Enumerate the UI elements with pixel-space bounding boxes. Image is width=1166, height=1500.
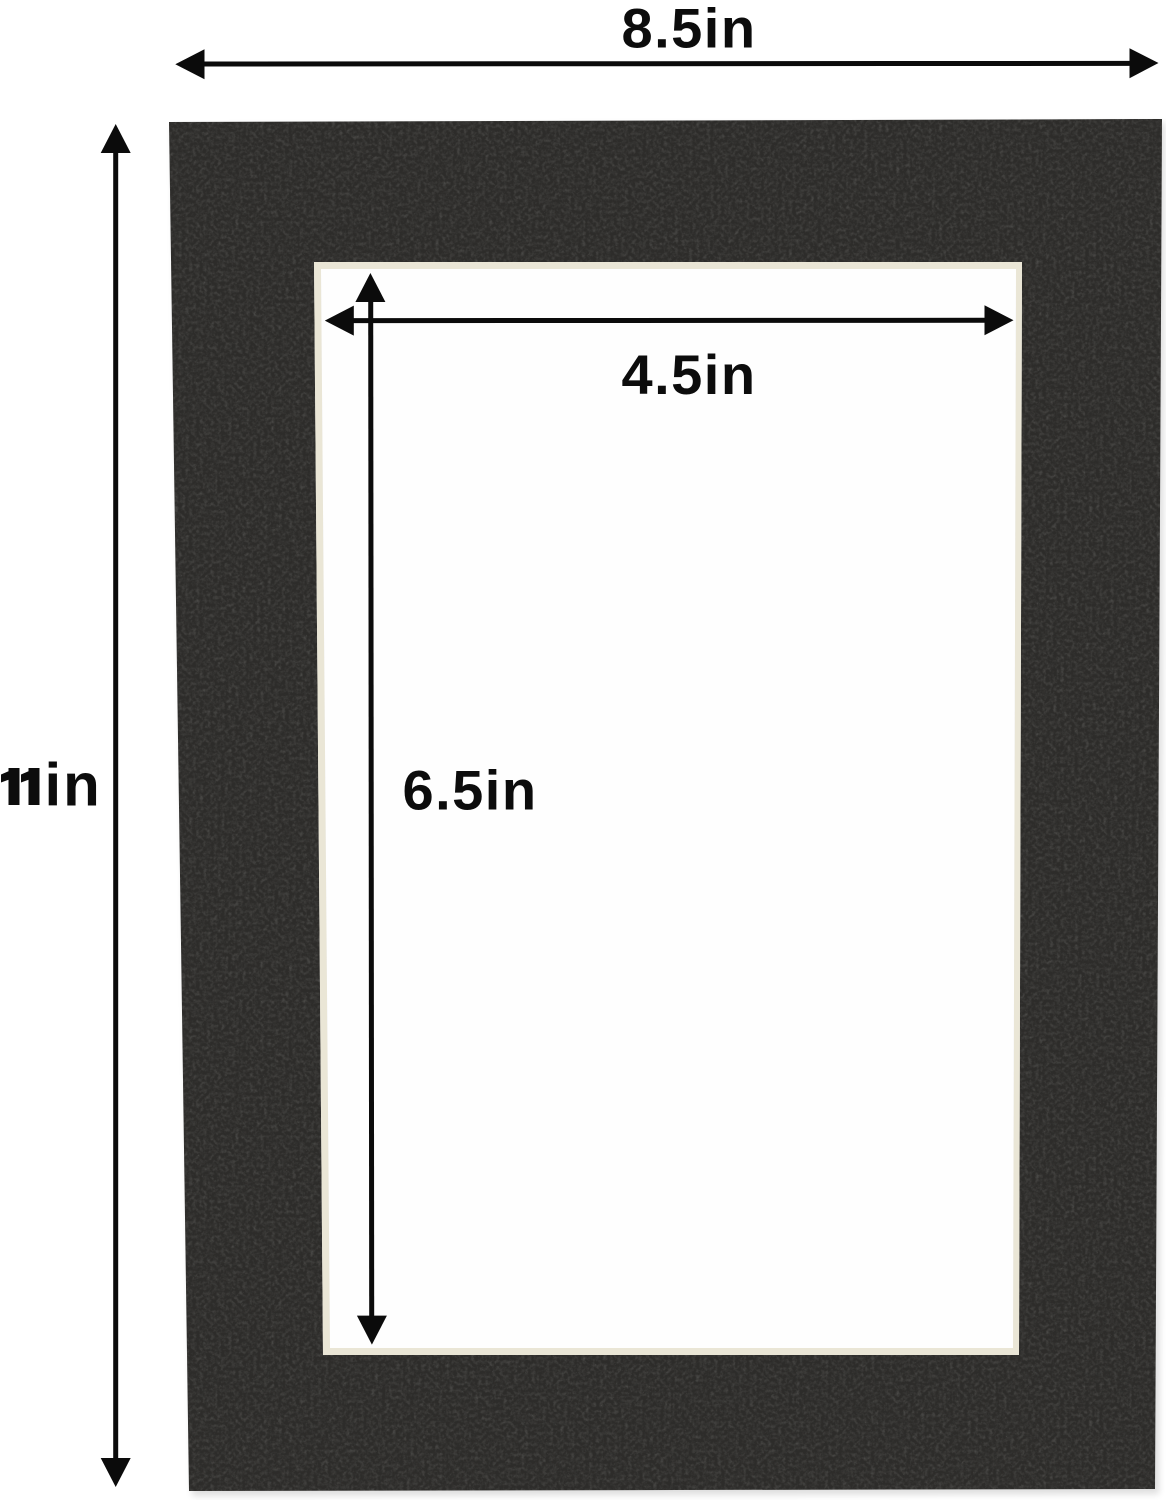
svg-text:in: in: [45, 752, 102, 819]
svg-text:8.5in: 8.5in: [621, 0, 756, 60]
svg-text:6.5in: 6.5in: [402, 759, 537, 822]
svg-text:4.5in: 4.5in: [621, 343, 756, 406]
